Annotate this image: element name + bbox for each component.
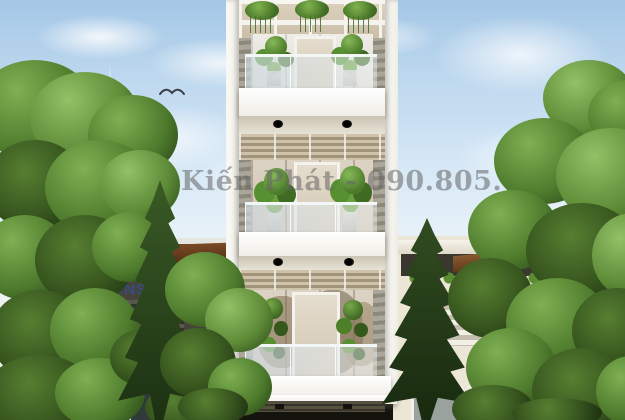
- downlight: [344, 258, 354, 266]
- vent-slot: [275, 404, 284, 409]
- balcony-slab-mid: [239, 232, 385, 256]
- louver-band-mid: [239, 134, 385, 160]
- downlight: [273, 120, 283, 128]
- soffit-top: [239, 116, 385, 134]
- balcony-slab-top: [239, 88, 385, 116]
- glass-railing-top: [245, 54, 377, 92]
- glass-railing-mid: [245, 202, 377, 236]
- downlight: [342, 120, 352, 128]
- hanging-plant: [343, 1, 377, 31]
- hanging-plant: [245, 1, 279, 31]
- vent-slot: [343, 404, 352, 409]
- hanging-plant: [295, 0, 329, 30]
- louver-band-low: [239, 270, 385, 290]
- architectural-render-scene: Phan Kiến Phát - 090.805.603 - (028) 376…: [0, 0, 625, 420]
- downlight: [273, 258, 283, 266]
- foliage-blob: [178, 388, 248, 420]
- foliage-blob: [512, 398, 602, 420]
- soffit-mid: [239, 256, 385, 270]
- facade-pillar-right: [385, 0, 398, 402]
